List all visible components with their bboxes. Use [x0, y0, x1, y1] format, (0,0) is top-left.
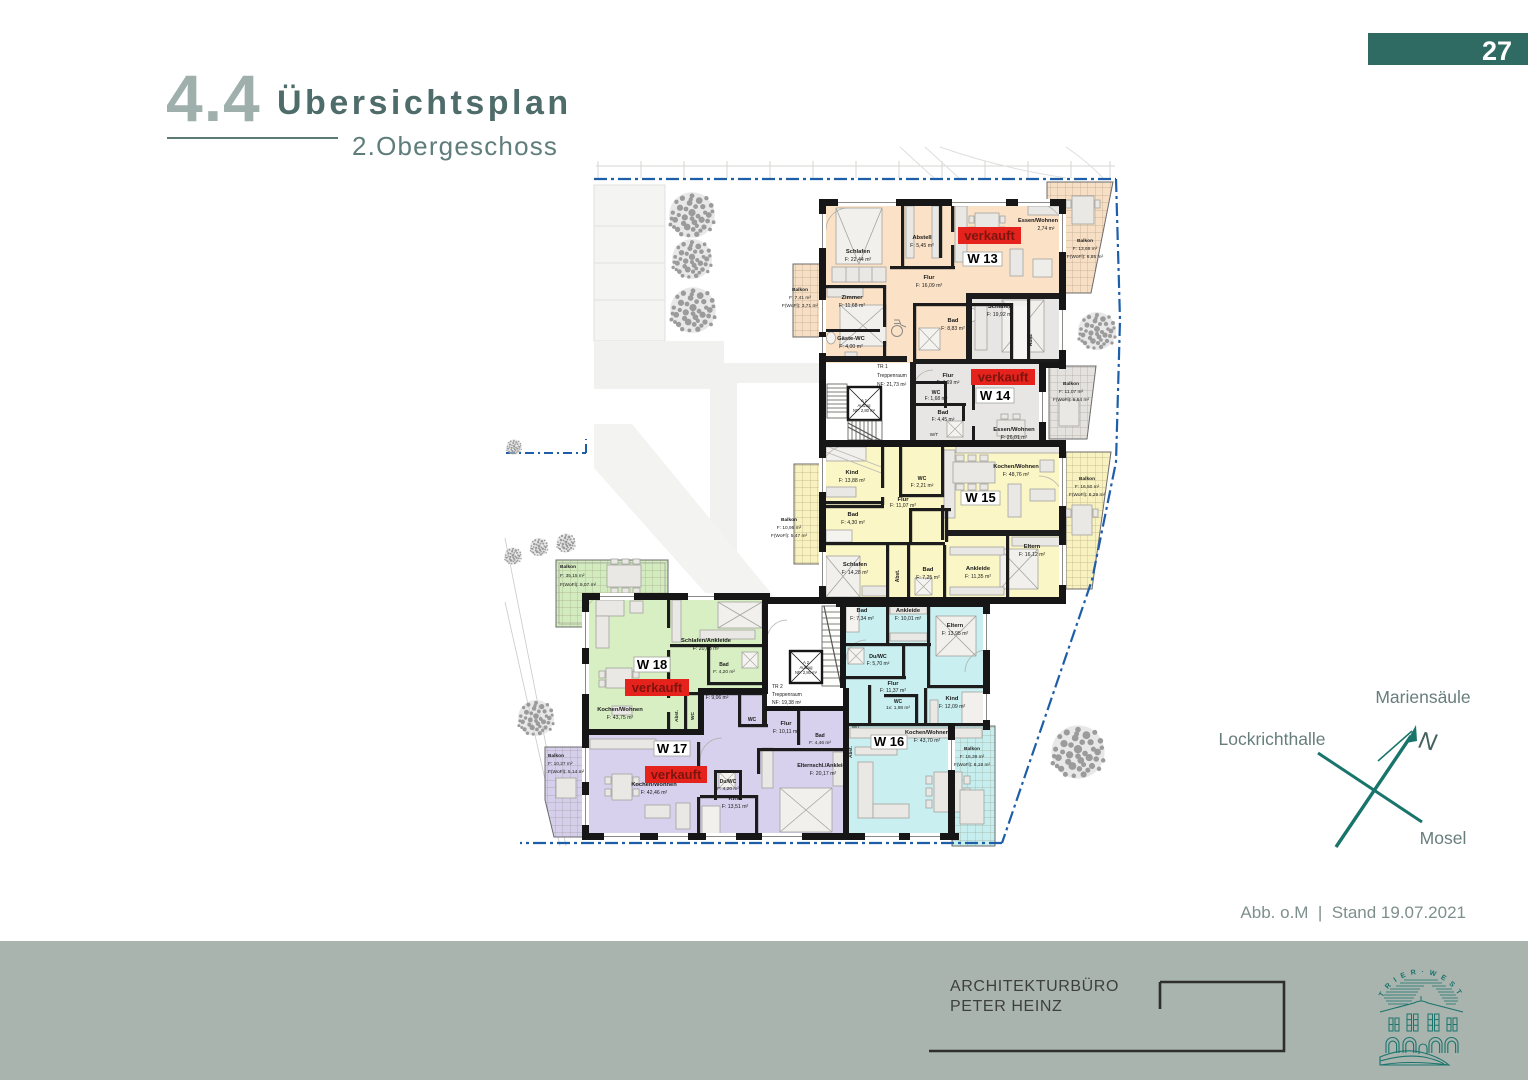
- svg-text:Essen/Wohnen: Essen/Wohnen: [1018, 218, 1059, 224]
- svg-text:Balkon: Balkon: [1079, 476, 1095, 482]
- svg-text:verkauft: verkauft: [978, 370, 1029, 385]
- svg-text:Lockrichthalle: Lockrichthalle: [1219, 729, 1326, 749]
- svg-text:Treppenraum: Treppenraum: [772, 692, 802, 698]
- svg-text:Du/WC: Du/WC: [869, 654, 887, 660]
- svg-text:Bad: Bad: [848, 512, 859, 518]
- svg-text:F(WoFl): 6,85 m²: F(WoFl): 6,85 m²: [1067, 254, 1104, 260]
- svg-text:Eltern: Eltern: [1024, 544, 1041, 550]
- svg-text:F: 20,63 m²: F: 20,63 m²: [693, 646, 720, 652]
- svg-text:Kind: Kind: [946, 696, 959, 702]
- svg-text:NF: 2,80 m²: NF: 2,80 m²: [853, 408, 876, 413]
- svg-text:F: 14,28 m²: F: 14,28 m²: [842, 570, 869, 576]
- svg-text:Abstell: Abstell: [912, 235, 932, 241]
- svg-text:W 17: W 17: [657, 741, 687, 756]
- svg-text:F: 16,09 m²: F: 16,09 m²: [916, 283, 943, 289]
- svg-text:F: 4,00 m²: F: 4,00 m²: [839, 344, 863, 350]
- svg-text:Flur: Flur: [781, 721, 793, 727]
- svg-text:NF: 2,80 m²: NF: 2,80 m²: [795, 670, 818, 675]
- svg-text:F: 10,11 m²: F: 10,11 m²: [773, 729, 799, 735]
- svg-text:F(WoFl): 8,19 m²: F(WoFl): 8,19 m²: [954, 762, 991, 768]
- svg-text:Ankleide: Ankleide: [966, 566, 991, 572]
- svg-text:F: 13,69 m²: F: 13,69 m²: [1073, 246, 1098, 252]
- svg-text:W 15: W 15: [965, 490, 995, 505]
- svg-text:Kochen/Wohnen: Kochen/Wohnen: [597, 707, 643, 713]
- svg-text:Abst.: Abst.: [674, 710, 680, 722]
- svg-text:Balkon: Balkon: [1063, 381, 1079, 387]
- svg-text:F(WoFl): 5,47 m²: F(WoFl): 5,47 m²: [771, 533, 808, 539]
- svg-text:F: 7,34 m²: F: 7,34 m²: [850, 616, 874, 622]
- svg-text:F: 11,68 m²: F: 11,68 m²: [839, 303, 865, 309]
- svg-text:F: 10,27 m²: F: 10,27 m²: [548, 761, 573, 767]
- svg-text:F(WoFl): 3,71 m²: F(WoFl): 3,71 m²: [782, 303, 819, 309]
- svg-text:Bad: Bad: [948, 318, 959, 324]
- svg-text:WC: WC: [918, 476, 927, 482]
- svg-text:W 18: W 18: [637, 657, 667, 672]
- svg-text:NF: 19,38 m²: NF: 19,38 m²: [772, 700, 802, 706]
- svg-text:Kind: Kind: [846, 470, 859, 476]
- svg-text:F: 12,09 m²: F: 12,09 m²: [939, 704, 966, 710]
- svg-text:Kochen/Wohnen: Kochen/Wohnen: [993, 464, 1039, 470]
- svg-text:F: 4,45 m²: F: 4,45 m²: [932, 417, 955, 423]
- svg-text:F(WoFl): 5,14 m²: F(WoFl): 5,14 m²: [548, 769, 585, 775]
- svg-text:Elternschl./Ankleide: Elternschl./Ankleide: [797, 763, 849, 769]
- svg-text:F: 5,45 m²: F: 5,45 m²: [910, 243, 934, 249]
- svg-text:F: 13,95 m²: F: 13,95 m²: [942, 631, 969, 637]
- svg-text:Balkon: Balkon: [781, 517, 797, 523]
- svg-text:WC: WC: [748, 717, 757, 723]
- svg-text:W/T: W/T: [930, 432, 939, 437]
- svg-text:Flur: Flur: [943, 373, 955, 379]
- svg-text:F: 16,12 m²: F: 16,12 m²: [1019, 552, 1046, 558]
- svg-text:F: 22,44 m²: F: 22,44 m²: [845, 257, 872, 263]
- svg-text:Flur: Flur: [712, 688, 722, 694]
- svg-text:F: 43,70 m²: F: 43,70 m²: [914, 738, 941, 744]
- svg-text:Balkon: Balkon: [792, 287, 808, 293]
- svg-text:Bad: Bad: [923, 567, 934, 573]
- svg-text:Abst.: Abst.: [895, 569, 901, 582]
- svg-text:F: 4,69 m²: F: 4,69 m²: [937, 380, 960, 386]
- svg-text:F: 43,75 m²: F: 43,75 m²: [607, 715, 634, 721]
- svg-text:F: 10,95 m²: F: 10,95 m²: [777, 525, 802, 531]
- svg-text:F: 20,17 m²: F: 20,17 m²: [810, 771, 837, 777]
- svg-text:Schlafen: Schlafen: [846, 249, 871, 255]
- svg-text:Abst.: Abst.: [1028, 333, 1034, 346]
- svg-text:F: 16,39 m²: F: 16,39 m²: [960, 754, 985, 760]
- svg-text:W/T: W/T: [852, 724, 861, 729]
- svg-text:W 13: W 13: [967, 251, 997, 266]
- svg-text:F: 4,20 m²: F: 4,20 m²: [717, 786, 739, 792]
- svg-text:Balkon: Balkon: [1077, 238, 1093, 244]
- svg-text:Mosel: Mosel: [1420, 828, 1467, 848]
- svg-text:Flur: Flur: [888, 681, 900, 687]
- svg-text:F: 13,88 m²: F: 13,88 m²: [839, 478, 866, 484]
- svg-text:Abst.: Abst.: [848, 746, 854, 758]
- svg-text:WC: WC: [894, 699, 903, 705]
- svg-text:verkauft: verkauft: [964, 228, 1015, 243]
- svg-text:F: 7,41 m²: F: 7,41 m²: [789, 295, 811, 301]
- svg-text:WC: WC: [690, 711, 696, 720]
- svg-text:F: 5,70 m²: F: 5,70 m²: [867, 661, 890, 667]
- svg-text:Schlafen: Schlafen: [843, 562, 868, 568]
- svg-text:F: 11,07 m²: F: 11,07 m²: [890, 503, 916, 509]
- svg-text:Bad: Bad: [857, 608, 868, 614]
- svg-text:TR 1: TR 1: [877, 364, 888, 370]
- svg-text:F(WoFl): 8,29 m²: F(WoFl): 8,29 m²: [1069, 492, 1106, 498]
- svg-text:F: 4,20 m²: F: 4,20 m²: [713, 669, 735, 675]
- svg-text:F: 11,07 m²: F: 11,07 m²: [1059, 389, 1084, 395]
- svg-text:F: 8,83 m²: F: 8,83 m²: [941, 326, 965, 332]
- svg-text:F: 13,51 m²: F: 13,51 m²: [722, 804, 749, 810]
- svg-text:Bad: Bad: [815, 733, 824, 739]
- svg-text:Kochen/Wohnen: Kochen/Wohnen: [905, 730, 950, 736]
- svg-text:Essen/Wohnen: Essen/Wohnen: [993, 427, 1035, 433]
- svg-text:Eltern: Eltern: [947, 623, 964, 629]
- svg-text:Du/WC: Du/WC: [720, 779, 737, 785]
- svg-text:verkauft: verkauft: [651, 767, 702, 782]
- svg-text:F: 19,92 m²: F: 19,92 m²: [987, 312, 1014, 318]
- svg-text:F: 4,30 m²: F: 4,30 m²: [841, 520, 865, 526]
- svg-text:W 16: W 16: [874, 734, 904, 749]
- svg-text:W 14: W 14: [980, 388, 1011, 403]
- svg-text:Flur: Flur: [924, 275, 936, 281]
- svg-text:Zimmer: Zimmer: [842, 295, 864, 301]
- svg-text:Schlafen: Schlafen: [988, 304, 1013, 310]
- svg-text:Treppenraum: Treppenraum: [877, 373, 907, 379]
- svg-text:F: 16,50 m²: F: 16,50 m²: [1075, 484, 1100, 490]
- svg-text:F: 48,76 m²: F: 48,76 m²: [1003, 472, 1030, 478]
- svg-text:Balkon: Balkon: [548, 753, 564, 759]
- svg-text:Schlafen/Ankleide: Schlafen/Ankleide: [681, 638, 732, 644]
- svg-text:Gäste-WC: Gäste-WC: [837, 336, 866, 342]
- svg-text:NF: 21,73 m²: NF: 21,73 m²: [877, 382, 907, 388]
- svg-text:F: 10,01 m²: F: 10,01 m²: [895, 616, 922, 622]
- svg-text:1x: 1,98 m²: 1x: 1,98 m²: [886, 705, 910, 711]
- svg-text:Kind: Kind: [729, 796, 742, 802]
- svg-text:F: 26,01 m²: F: 26,01 m²: [1001, 435, 1028, 441]
- svg-text:Balkon: Balkon: [560, 564, 576, 570]
- svg-text:F: 1,68 m²: F: 1,68 m²: [925, 396, 948, 402]
- svg-text:2,74 m²: 2,74 m²: [1038, 226, 1055, 232]
- svg-text:F: 7,25 m²: F: 7,25 m²: [916, 575, 940, 581]
- svg-text:F: 11,35 m²: F: 11,35 m²: [965, 574, 991, 580]
- svg-text:Mariensäule: Mariensäule: [1375, 687, 1470, 707]
- svg-text:Bad: Bad: [719, 662, 728, 668]
- svg-text:F: 2,21 m²: F: 2,21 m²: [911, 483, 934, 489]
- svg-text:F: 9,06 m²: F: 9,06 m²: [706, 695, 729, 701]
- svg-text:F(WoFl): 5,54 m²: F(WoFl): 5,54 m²: [1053, 397, 1090, 403]
- svg-text:TR 2: TR 2: [772, 684, 783, 690]
- svg-text:N: N: [1416, 727, 1439, 757]
- svg-text:F: 11,37 m²: F: 11,37 m²: [880, 688, 906, 694]
- svg-text:Bad: Bad: [938, 410, 949, 416]
- svg-text:Ankleide: Ankleide: [896, 608, 921, 614]
- svg-text:F: 35,15 m²: F: 35,15 m²: [560, 573, 585, 579]
- svg-text:Balkon: Balkon: [964, 746, 980, 752]
- svg-text:F: 4,46 m²: F: 4,46 m²: [809, 740, 831, 746]
- svg-text:F(WoFl): 9,07 m²: F(WoFl): 9,07 m²: [560, 582, 597, 588]
- svg-text:F: 42,46 m²: F: 42,46 m²: [641, 790, 668, 796]
- svg-text:verkauft: verkauft: [632, 680, 683, 695]
